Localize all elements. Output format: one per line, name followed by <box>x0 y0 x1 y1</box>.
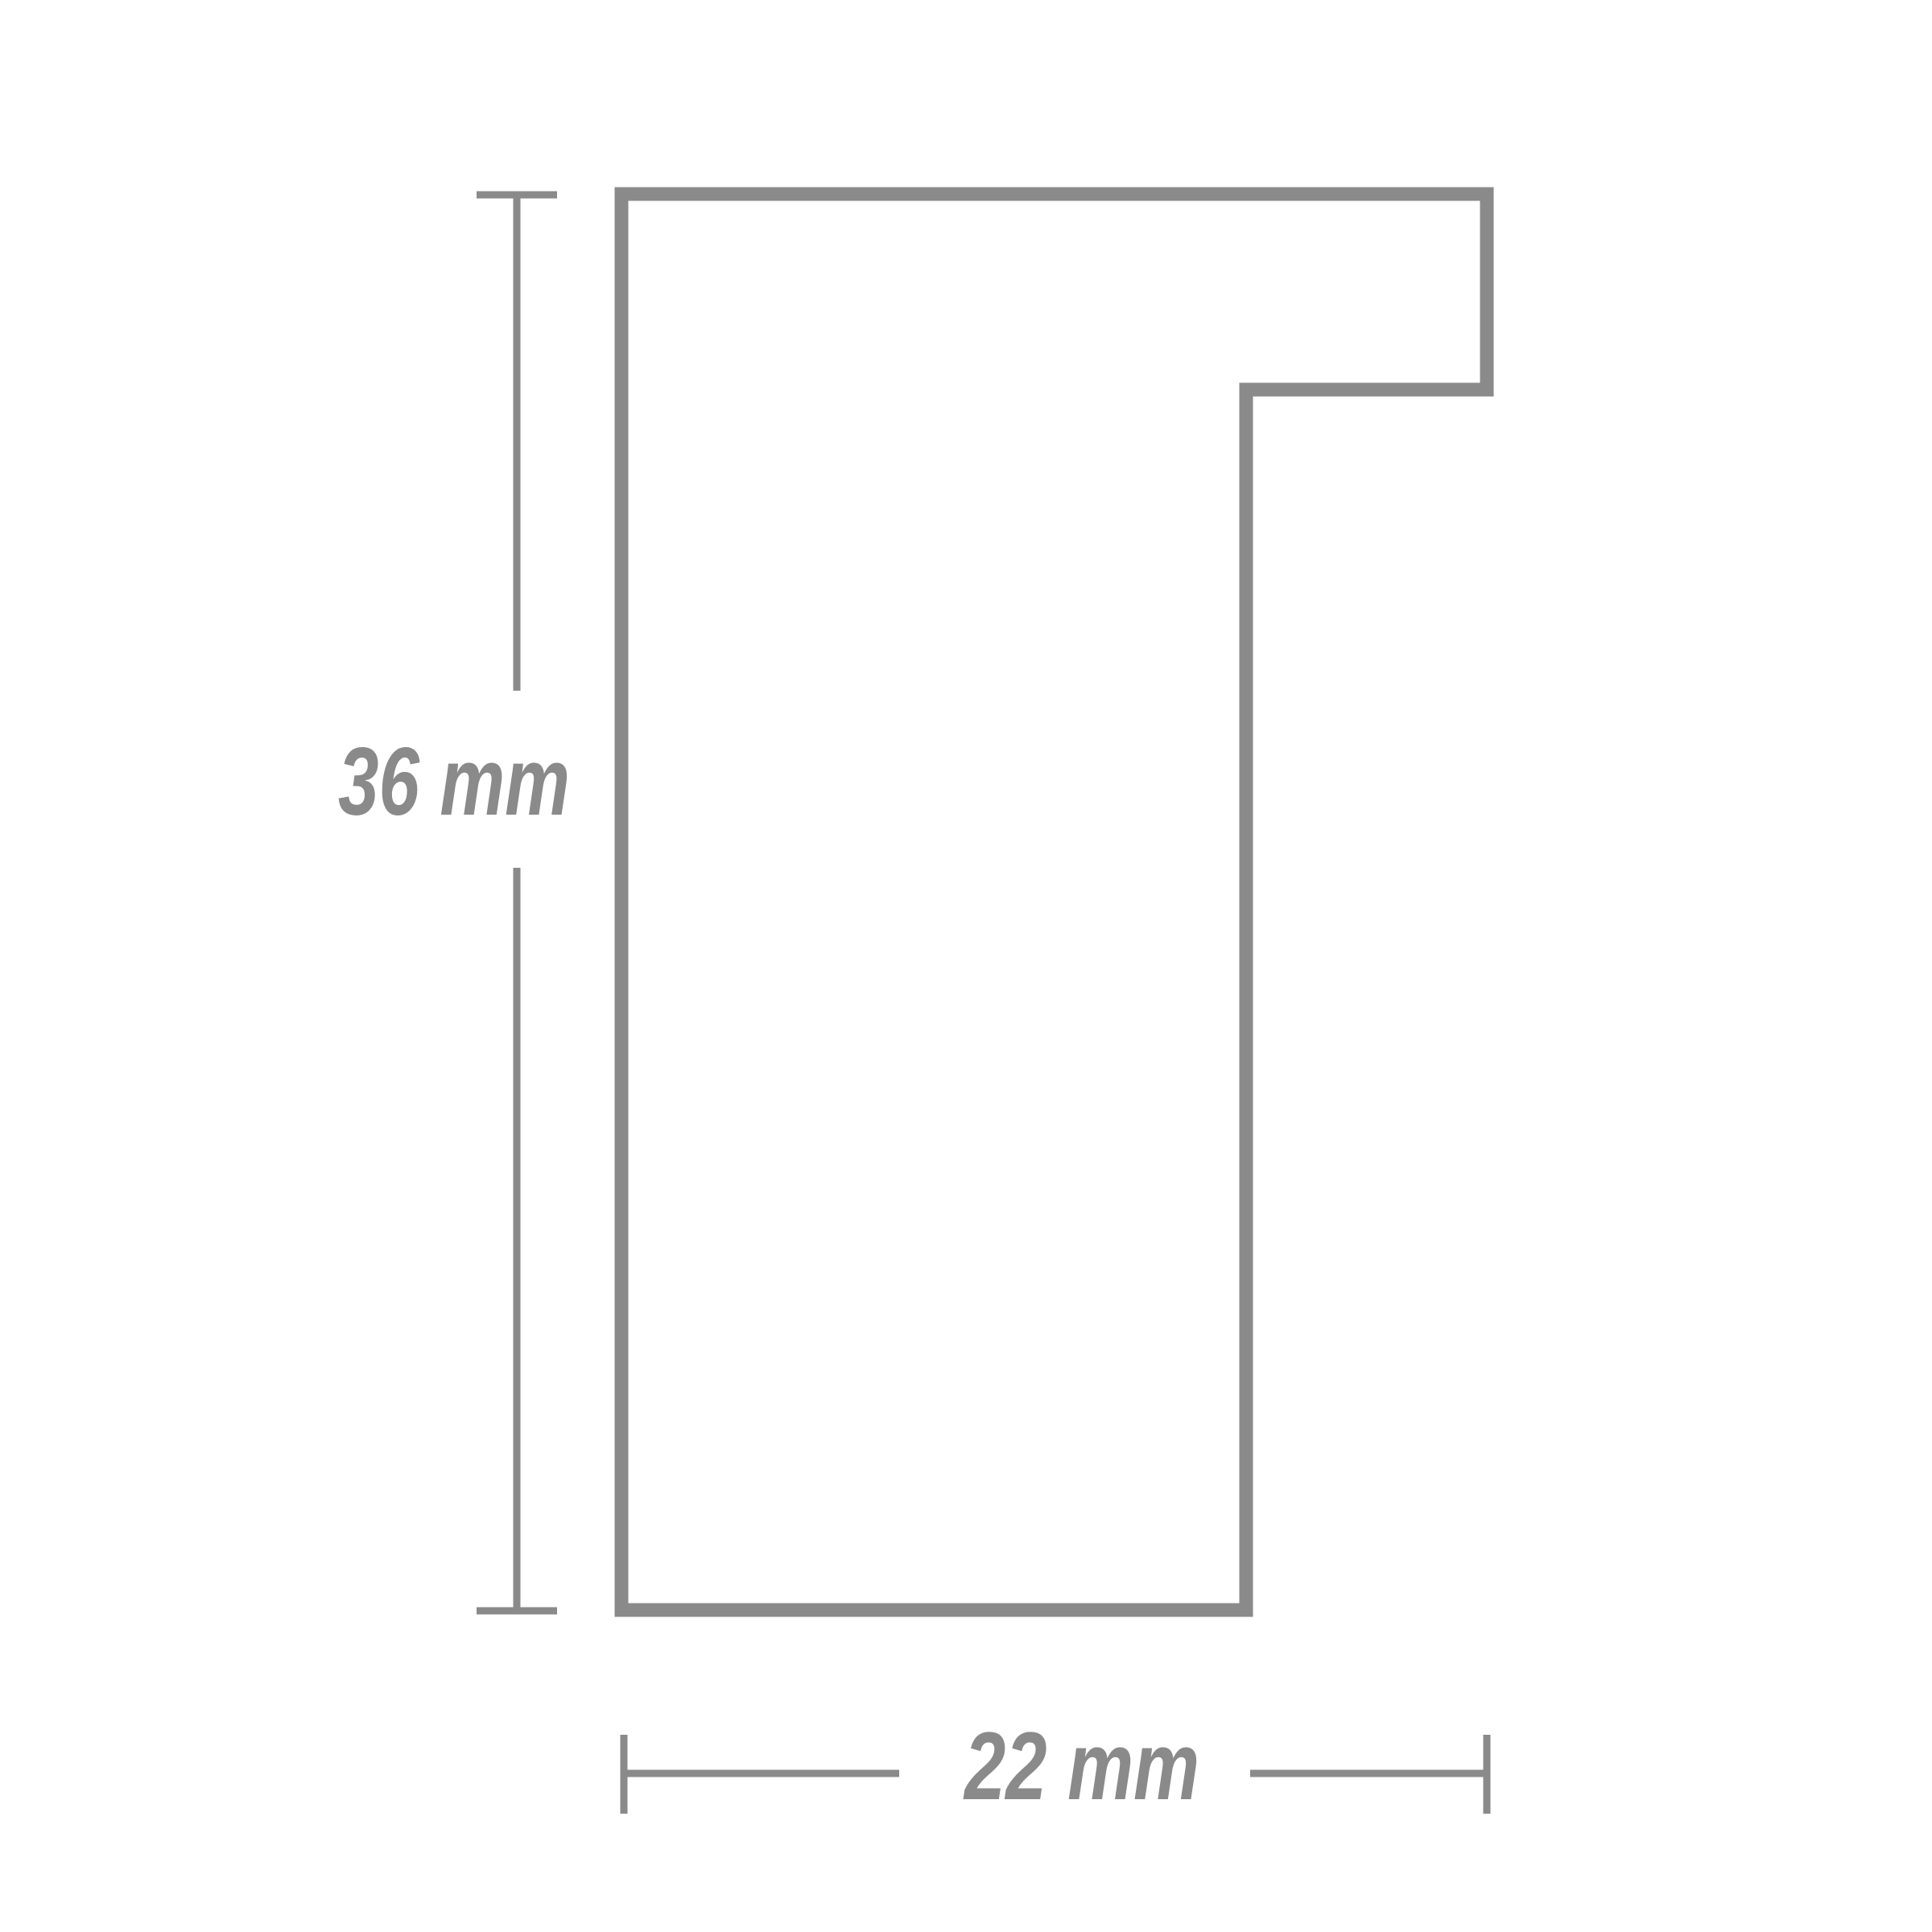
moulding-profile-outline <box>621 194 1487 1610</box>
moulding-profile-diagram: 36 mm 22 mm <box>0 0 1932 1932</box>
height-dimension: 36 mm <box>338 195 570 1611</box>
width-dimension: 22 mm <box>624 1712 1487 1820</box>
height-dimension-label: 36 mm <box>338 728 570 836</box>
width-dimension-label: 22 mm <box>963 1712 1199 1820</box>
diagram-canvas: 36 mm 22 mm <box>0 0 1932 1932</box>
